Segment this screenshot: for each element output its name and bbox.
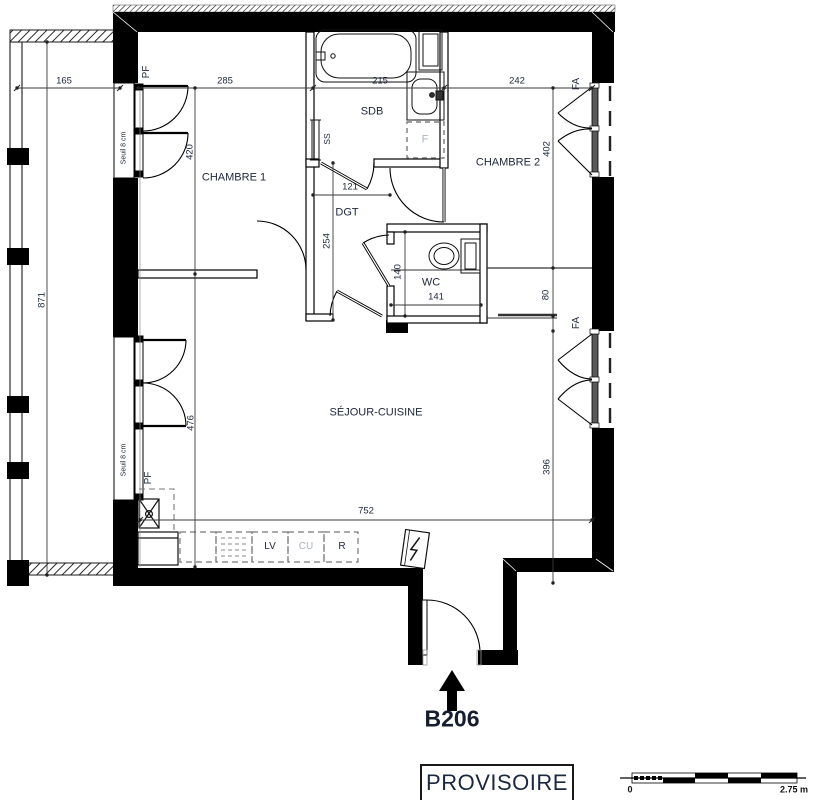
dim-871: 871 [37,292,47,308]
door-chambre2 [390,168,444,222]
dim-242: 242 [509,76,525,86]
stamp-text: PROVISOIRE [426,770,568,796]
kitchen [138,489,429,568]
wc-fixtures [429,239,480,273]
dim-285: 285 [217,76,233,86]
balcony-hatch-top [10,30,118,42]
dim-215: 215 [372,76,388,86]
balcony-railing [10,42,22,575]
dim-752: 752 [358,506,374,516]
opening-label-pf1: PF [142,66,152,79]
exterior-walls [113,5,615,665]
dim-141: 141 [428,292,444,302]
provisoire-stamp: PROVISOIRE [420,764,574,800]
dim-121: 121 [342,182,358,192]
dim-80: 80 [541,290,551,301]
opening-label-fa1: FA [572,78,582,90]
dim-476: 476 [186,415,196,431]
dim-165: 165 [56,76,72,86]
appliance-label-lv: LV [264,542,276,552]
balcony-hatch-bottom [28,563,117,575]
electrical-panel [401,530,430,569]
kitchen-corner-unit [138,532,178,565]
appliance-label-f: F [422,135,429,146]
room-label-sdb: SDB [361,107,384,118]
kitchen-sink-unit [216,532,252,562]
fa-window-chambre2 [558,83,610,177]
dim-420: 420 [185,144,195,160]
bathroom-column-unit [419,30,442,70]
room-label-wc: WC [422,278,440,289]
unit-label: B206 [425,708,480,731]
room-label-chambre2: CHAMBRE 2 [476,158,540,169]
radiator-label-ss: SS [323,133,332,144]
scale-start-label: 0 [627,786,632,795]
dimension-ticks [15,40,593,584]
toilet-cistern [461,239,480,273]
door-dgt [330,291,382,316]
floor-plan: CHAMBRE 1 CHAMBRE 2 SDB DGT WC SÉJOUR-CU… [0,0,822,800]
room-label-dgt: DGT [335,208,358,219]
washbasin-faucet [436,91,443,100]
dim-140: 140 [393,264,403,280]
dimension-lines [17,42,592,583]
wall-joint-marks [113,12,613,571]
scale-end-label: 2.75 m [780,786,808,795]
room-label-sejour: SÉJOUR-CUISINE [330,408,423,419]
door-entrance [422,600,481,665]
balcony [7,30,118,586]
appliance-label-r: R [338,542,345,552]
door-wc [363,235,389,286]
dim-396: 396 [542,459,552,475]
appliance-label-cu: CU [299,542,313,552]
dim-254: 254 [322,233,332,249]
opening-label-pf2: PF [144,472,154,485]
opening-label-fa2: FA [572,317,582,329]
fa-window-sejour [558,329,610,428]
thin-boundary-lines [391,268,592,318]
dim-402: 402 [542,141,552,157]
plan-linework [0,0,822,800]
threshold-label-2: Seuil 8 cm [121,444,128,477]
top-wall-hatch [113,5,615,12]
door-arc-chambre1 [257,221,306,270]
threshold-label-1: Seuil 8 cm [121,132,128,165]
scale-bar [620,773,806,783]
room-label-chambre1: CHAMBRE 1 [202,173,266,184]
dimension-slashes [14,85,595,523]
